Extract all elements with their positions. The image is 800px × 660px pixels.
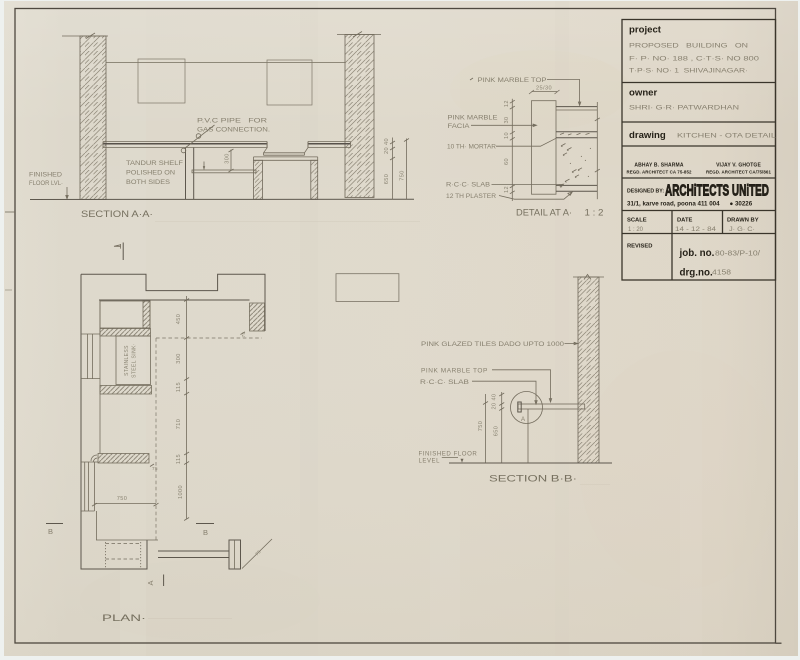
svg-text:job. no.: job. no. [679,248,715,259]
svg-text:20 40: 20 40 [384,138,390,154]
svg-text:PINK MARBLE TOP: PINK MARBLE TOP [478,77,547,84]
svg-text:J· G· C·: J· G· C· [729,226,755,233]
svg-text:R·C·C· SLAB: R·C·C· SLAB [446,182,490,189]
svg-text:drawing: drawing [629,130,666,141]
svg-text:A: A [146,580,155,586]
svg-text:25/30: 25/30 [536,86,552,92]
svg-text:REGD. ARCHITECT CA/75/861: REGD. ARCHITECT CA/75/861 [706,170,771,175]
svg-text:PINK GLAZED TILES DADO UPTO 10: PINK GLAZED TILES DADO UPTO 1000 [421,341,564,348]
svg-text:A: A [521,417,526,423]
svg-text:● 30226: ● 30226 [730,201,753,208]
svg-text:30: 30 [504,116,510,123]
svg-text:DETAIL AT A·: DETAIL AT A· [516,208,572,219]
svg-text:FLOOR LVL·: FLOOR LVL· [29,180,63,187]
svg-text:1 : 2: 1 : 2 [585,208,604,218]
svg-text:450: 450 [176,314,182,325]
svg-text:drg.no.: drg.no. [680,268,713,279]
svg-text:LEVEL: LEVEL [419,458,441,465]
svg-text:VIJAY V. GHOTGE: VIJAY V. GHOTGE [716,163,761,169]
svg-text:owner: owner [629,88,658,99]
svg-text:R·C·C· SLAB: R·C·C· SLAB [420,379,469,386]
svg-text:10: 10 [504,132,510,139]
svg-text:80-83/P-10/: 80-83/P-10/ [715,249,761,258]
svg-text:650: 650 [384,174,390,185]
svg-text:4158: 4158 [712,268,731,277]
svg-text:P.V.C PIPE FOR: P.V.C PIPE FOR [197,118,267,125]
svg-text:650: 650 [494,426,500,437]
svg-text:DATE: DATE [677,218,692,224]
svg-text:SCALE: SCALE [627,218,647,224]
svg-text:PINK MARBLE TOP: PINK MARBLE TOP [421,368,488,375]
svg-text:1 : 20: 1 : 20 [628,226,643,233]
svg-text:PLAN·: PLAN· [102,613,146,624]
svg-text:115: 115 [176,454,182,464]
svg-text:12: 12 [504,186,510,193]
svg-text:TANDUR SHELF: TANDUR SHELF [126,160,183,167]
svg-text:ABHAY B. SHARMA: ABHAY B. SHARMA [634,163,683,169]
svg-text:710: 710 [176,419,182,430]
svg-text:REGD. ARCHITECT CA 75-852: REGD. ARCHITECT CA 75-852 [626,170,692,175]
svg-text:31/1, karve road, poona 411 00: 31/1, karve road, poona 411 004 [627,201,720,208]
svg-text:14 - 12 - 84: 14 - 12 - 84 [675,226,717,233]
svg-text:SHRI· G·R· PATWARDHAN: SHRI· G·R· PATWARDHAN [629,105,739,112]
svg-text:60: 60 [504,158,510,165]
svg-text:POLISHED ON: POLISHED ON [126,170,175,177]
svg-text:FINISHED: FINISHED [29,172,62,179]
svg-text:10 TH· MORTAR: 10 TH· MORTAR [447,143,497,150]
svg-text:75: 75 [152,466,158,471]
svg-text:20 40: 20 40 [492,394,498,410]
svg-text:REVISED: REVISED [627,244,652,250]
svg-text:FINISHED FLOOR: FINISHED FLOOR [419,451,478,458]
svg-text:FACIA: FACIA [448,123,471,130]
svg-text:SECTION A·A·: SECTION A·A· [81,209,153,219]
svg-text:115: 115 [176,382,182,392]
svg-text:12 TH PLASTER: 12 TH PLASTER [446,193,497,200]
svg-text:BOTH SIDES: BOTH SIDES [126,179,171,186]
svg-text:T·P·S· NO· 1 SHIVAJINAGAR·: T·P·S· NO· 1 SHIVAJINAGAR· [629,68,748,75]
svg-text:300: 300 [225,153,231,164]
svg-text:DRAWN BY: DRAWN BY [727,218,759,224]
svg-text:1000: 1000 [178,485,184,499]
svg-text:750: 750 [117,496,128,502]
svg-text:KITCHEN - OTA DETAIL: KITCHEN - OTA DETAIL [677,133,777,140]
svg-text:ARCHiTECTS UNiTED: ARCHiTECTS UNiTED [665,183,769,200]
svg-text:12: 12 [504,100,510,107]
svg-text:B: B [203,528,209,537]
svg-text:SECTION B·B·: SECTION B·B· [489,474,577,485]
svg-text:750: 750 [400,170,406,181]
svg-text:300: 300 [176,353,182,364]
svg-text:B: B [48,527,54,536]
svg-text:STEEL SINK·: STEEL SINK· [132,343,138,378]
svg-text:PINK MARBLE: PINK MARBLE [448,115,498,122]
svg-text:STAINLESS: STAINLESS [124,345,130,376]
svg-text:project: project [629,25,662,36]
svg-text:PROPOSED BUILDING ON: PROPOSED BUILDING ON [629,43,748,50]
svg-text:F· P· NO· 188 , C·T·S· NO 800: F· P· NO· 188 , C·T·S· NO 800 [629,56,760,63]
svg-text:DESIGNED BY:: DESIGNED BY: [627,189,664,195]
svg-text:750: 750 [478,421,484,432]
